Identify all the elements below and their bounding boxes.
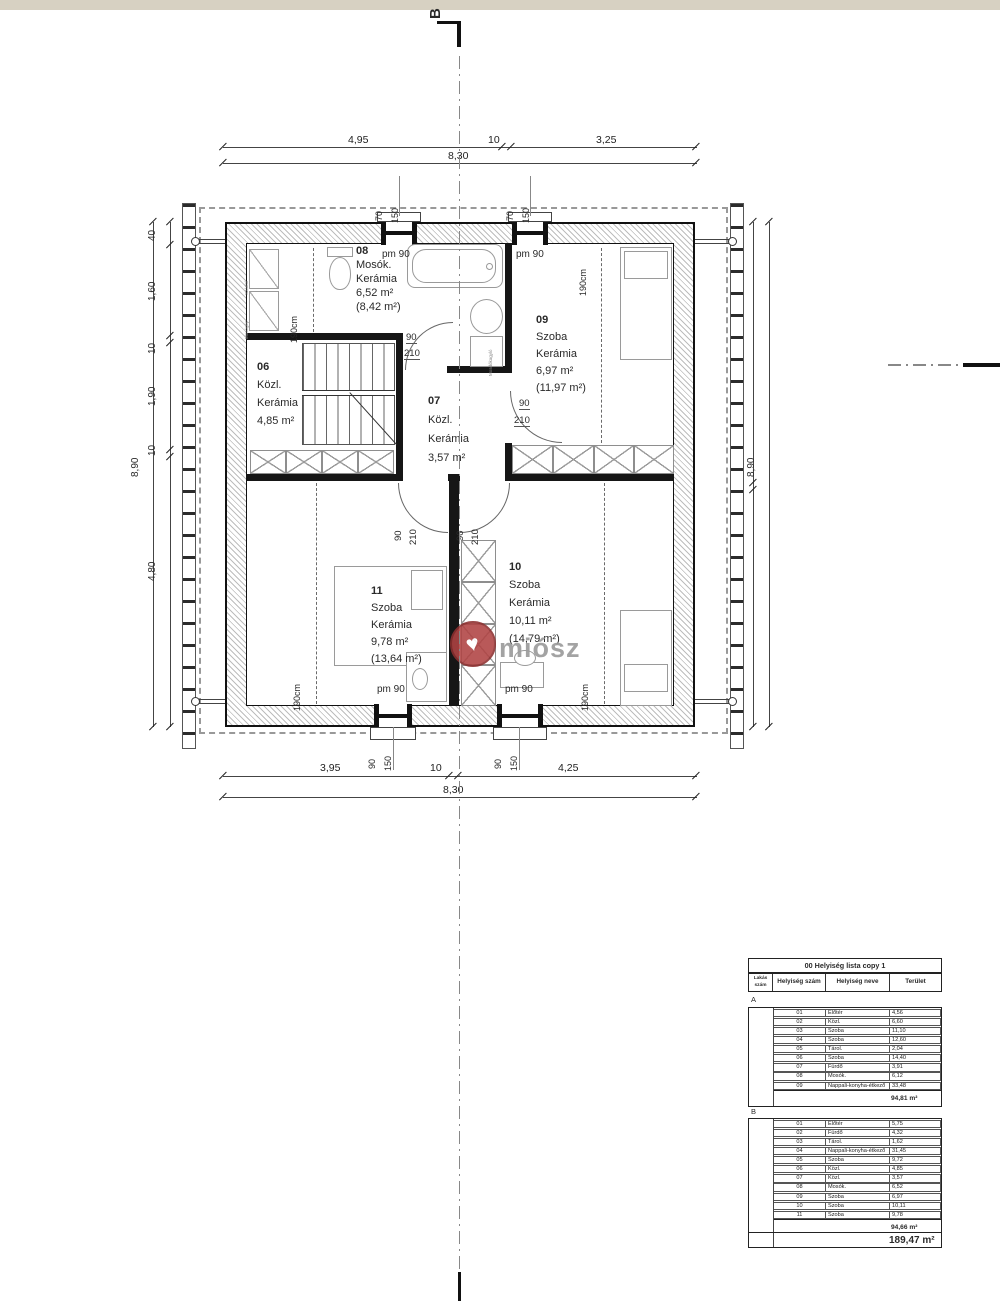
table-row: 08 Mosók. 6,12: [773, 1072, 941, 1080]
window-frame: [493, 727, 547, 740]
grand-total: 189,47 m²: [889, 1235, 935, 1246]
col-header-helyiseg-neve: Helyiség neve: [826, 974, 890, 991]
section-b-rows: 01 Előtér 5,75 02 Fürdő 4,32 03 Tárol. 1…: [773, 1120, 941, 1219]
col-header-terulet: Terület: [890, 974, 941, 991]
door-dim-w: 90: [519, 398, 530, 410]
window-dim-w: 70: [505, 211, 516, 221]
door-dim-w: 90: [406, 332, 417, 344]
washer-label: Mosógép: [241, 320, 252, 339]
table-row: 03 Szoba 11,10: [773, 1027, 941, 1035]
headroom-label: 190cm: [578, 269, 589, 296]
dim-bottom-2: 10: [430, 762, 442, 774]
cell-room-area: 5,75: [890, 1121, 940, 1127]
room-label-11: 11 Szoba Kerámia 9,78 m² (13,64 m²): [371, 583, 422, 668]
table-row: 05 Tárol. 2,04: [773, 1045, 941, 1053]
dim-left-4: 1,90: [147, 387, 158, 406]
wall: [396, 333, 403, 481]
table-row: 02 Fürdő 4,32: [773, 1129, 941, 1137]
cell-room-number: 04: [774, 1148, 826, 1154]
dim-top-3: 3,25: [596, 134, 616, 146]
wardrobe: [594, 445, 634, 474]
room-area: 4,85 m²: [257, 412, 298, 430]
window-dim-w: 90: [493, 759, 504, 769]
table-row: 09 Szoba 6,97: [773, 1193, 941, 1201]
room-number: 06: [257, 358, 298, 376]
cell-room-area: 33,48: [890, 1083, 940, 1089]
cell-room-name: Mosók.: [826, 1073, 890, 1079]
room-name: Szoba: [509, 576, 560, 594]
wall: [505, 243, 512, 373]
gutter-dot: [191, 697, 200, 706]
wardrobe: [286, 450, 322, 474]
chair: [412, 668, 428, 690]
dim-left-1: 40: [147, 230, 158, 241]
cell-room-number: 06: [774, 1055, 826, 1061]
dim-left-3: 10: [147, 343, 158, 354]
table-row: 04 Szoba 12,60: [773, 1036, 941, 1044]
headroom-line: [313, 248, 314, 332]
headroom-label: 190cm: [292, 684, 303, 711]
room-number: 11: [371, 583, 422, 600]
section-a-rows: 01 Előtér 4,56 02 Közl. 6,60 03 Szoba 11…: [773, 1009, 941, 1090]
door-dim-h: 210: [470, 529, 481, 545]
cell-room-number: 02: [774, 1019, 826, 1025]
parapet-label: pm 90: [377, 684, 405, 695]
cell-room-number: 07: [774, 1064, 826, 1070]
wardrobe: [553, 445, 594, 474]
room-number: 09: [536, 312, 586, 329]
cell-room-name: Szoba: [826, 1028, 890, 1034]
cell-room-number: 03: [774, 1028, 826, 1034]
table-row: 09 Nappali-konyha-étkező 33,48: [773, 1082, 941, 1090]
bed-pillow: [624, 251, 668, 279]
cell-room-area: 9,78: [890, 1212, 940, 1218]
room-number: 10: [509, 558, 560, 576]
door-dim-w: 90: [455, 530, 466, 541]
cell-room-name: Mosók.: [826, 1184, 890, 1190]
col-header-lakas-szam: Lakás szám: [749, 974, 773, 991]
table-row: 01 Előtér 4,56: [773, 1009, 941, 1017]
parapet-label: pm 90: [505, 684, 533, 695]
cell-room-number: 07: [774, 1175, 826, 1181]
table-row: 02 Közl. 6,60: [773, 1018, 941, 1026]
window-dim-h: 150: [390, 208, 401, 223]
bathtub-tap: [486, 263, 493, 270]
cell-room-name: Fürdő: [826, 1130, 890, 1136]
window-dim-w: 70: [374, 211, 385, 221]
dryer: [249, 249, 279, 289]
window: [497, 714, 543, 718]
wardrobe: [250, 450, 286, 474]
cell-room-number: 05: [774, 1046, 826, 1052]
cell-room-area: 9,72: [890, 1157, 940, 1163]
window-dim-w: 90: [367, 759, 378, 769]
room-label-09: 09 Szoba Kerámia 6,97 m² (11,97 m²): [536, 312, 586, 397]
dim-line: [223, 163, 697, 164]
dim-left-2: 1,60: [147, 282, 158, 301]
cell-room-name: Közl.: [826, 1166, 890, 1172]
table-row: 06 Szoba 14,40: [773, 1054, 941, 1062]
lakas-szam-column: [749, 1119, 774, 1235]
room-name: Szoba: [536, 329, 586, 346]
cell-room-name: Tárol.: [826, 1139, 890, 1145]
room-name: Mosók.: [356, 258, 401, 272]
cell-room-number: 03: [774, 1139, 826, 1145]
table-row: 10 Szoba 10,11: [773, 1202, 941, 1210]
table-row: 05 Szoba 9,72: [773, 1156, 941, 1164]
dim-top-2: 10: [488, 134, 500, 146]
cell-room-area: 12,60: [890, 1037, 940, 1043]
wardrobe: [461, 582, 496, 624]
lakas-szam-column: [749, 1008, 774, 1106]
lakas-szam-column: [749, 1233, 774, 1247]
cell-room-area: 1,62: [890, 1139, 940, 1145]
headroom-line: [604, 483, 605, 704]
dim-bottom-1: 3,95: [320, 762, 340, 774]
section-marker-label: B: [430, 8, 441, 19]
cell-room-number: 04: [774, 1037, 826, 1043]
cell-room-number: 08: [774, 1184, 826, 1190]
wall: [449, 481, 459, 706]
dim-top-1: 4,95: [348, 134, 368, 146]
dim-left-6: 4,80: [147, 562, 158, 581]
headroom-line: [601, 248, 602, 443]
cell-room-name: Szoba: [826, 1055, 890, 1061]
room-area-gross: (11,97 m²): [536, 380, 586, 397]
dim-bottom-total: 8,30: [443, 784, 463, 796]
room-material: Kerámia: [356, 272, 401, 286]
dim-line: [223, 797, 697, 798]
wall: [246, 333, 396, 340]
headroom-label: 190cm: [289, 316, 300, 343]
cell-room-number: 11: [774, 1212, 826, 1218]
cell-room-name: Nappali-konyha-étkező: [826, 1148, 890, 1154]
room-number: 07: [428, 392, 469, 411]
roof-edge-left: [182, 203, 196, 749]
washbasin-label: Mosdókagyló: [485, 349, 496, 376]
cell-room-name: Fürdő: [826, 1064, 890, 1070]
cell-room-number: 06: [774, 1166, 826, 1172]
cell-room-area: 6,52: [890, 1184, 940, 1190]
section-b-label: B: [751, 1107, 756, 1116]
door-dim-h: 210: [404, 348, 420, 360]
dim-line: [223, 147, 697, 148]
cell-room-name: Szoba: [826, 1157, 890, 1163]
headroom-label: 190cm: [580, 684, 591, 711]
section-line-b: [459, 56, 461, 1272]
table-row: 01 Előtér 5,75: [773, 1120, 941, 1128]
table-row: 08 Mosók. 6,52: [773, 1183, 941, 1191]
dim-line: [769, 222, 770, 727]
cell-room-area: 4,85: [890, 1166, 940, 1172]
wardrobe: [634, 445, 674, 474]
room-area: 3,57 m²: [428, 449, 469, 468]
wardrobe: [461, 540, 496, 582]
section-line-a-end: [963, 363, 1000, 367]
watermark-text: miósz: [499, 633, 581, 664]
room-label-06: 06 Közl. Kerámia 4,85 m²: [257, 358, 298, 430]
cell-room-name: Nappali-konyha-étkező: [826, 1083, 890, 1089]
scan-edge: [0, 0, 1000, 10]
door-dim-w: 90: [393, 530, 404, 541]
bed-pillow: [624, 664, 668, 692]
room-material: Kerámia: [257, 394, 298, 412]
wardrobe: [322, 450, 358, 474]
cell-room-name: Tárol.: [826, 1046, 890, 1052]
section-a-label: A: [751, 995, 756, 1004]
wardrobe: [358, 450, 394, 474]
dim-line: [170, 222, 171, 727]
table-title-cell: 00 Helyiség lista copy 1: [748, 958, 942, 973]
gutter-dot: [191, 237, 200, 246]
room-area: 9,78 m²: [371, 634, 422, 651]
dim-left-total: 8,90: [130, 458, 141, 477]
window-dim-h: 150: [383, 756, 394, 771]
cell-room-name: Szoba: [826, 1203, 890, 1209]
door-dim-h: 210: [514, 415, 530, 427]
section-a-total: 94,81 m²: [891, 1095, 917, 1102]
col-header-helyiseg-szam: Helyiség szám: [773, 974, 826, 991]
section-marker-line: [457, 21, 461, 47]
grand-total-row: 189,47 m²: [748, 1232, 942, 1248]
section-line-b-end: [458, 1272, 461, 1301]
toilet-tank: [327, 247, 353, 257]
dim-line: [223, 776, 697, 777]
dim-left-5: 10: [147, 445, 158, 456]
room-area: 10,11 m²: [509, 612, 560, 630]
watermark-logo: ♥: [450, 621, 496, 667]
window-dim-h: 150: [521, 208, 532, 223]
dim-right-total: 8,90: [746, 458, 757, 477]
room-name: Szoba: [371, 600, 422, 617]
room-material: Kerámia: [371, 617, 422, 634]
cell-room-number: 05: [774, 1157, 826, 1163]
window-dim-h: 150: [509, 756, 520, 771]
logo-emblem-icon: ♥: [450, 621, 496, 667]
wall: [246, 474, 398, 481]
table-row: 11 Szoba 9,78: [773, 1211, 941, 1219]
cell-room-area: 3,91: [890, 1064, 940, 1070]
wall: [447, 366, 512, 373]
cell-room-number: 01: [774, 1121, 826, 1127]
cell-room-name: Szoba: [826, 1212, 890, 1218]
room-name: Közl.: [257, 376, 298, 394]
room-label-07: 07 Közl. Kerámia 3,57 m²: [428, 392, 469, 468]
cell-room-name: Közl.: [826, 1019, 890, 1025]
room-material: Kerámia: [428, 430, 469, 449]
room-area-gross: (8,42 m²): [356, 300, 401, 314]
table-row: 06 Közl. 4,85: [773, 1165, 941, 1173]
cell-room-area: 6,60: [890, 1019, 940, 1025]
wardrobe: [461, 665, 496, 706]
cell-room-area: 4,32: [890, 1130, 940, 1136]
table-row: 07 Közl. 3,57: [773, 1174, 941, 1182]
floor-plan-sheet: B 4,95 10 3,25 8,30 3,95 10 4,25 8,30 40…: [0, 0, 1000, 1301]
door-dim-h: 210: [408, 529, 419, 545]
gutter-dot: [728, 237, 737, 246]
dim-bottom-3: 4,25: [558, 762, 578, 774]
room-label-08: 08 Mosók. Kerámia 6,52 m² (8,42 m²): [356, 244, 401, 314]
table-section-b: 01 Előtér 5,75 02 Fürdő 4,32 03 Tárol. 1…: [748, 1118, 942, 1236]
toilet: [329, 257, 351, 290]
cell-room-area: 14,40: [890, 1055, 940, 1061]
wardrobe: [512, 445, 553, 474]
cell-room-area: 3,57: [890, 1175, 940, 1181]
cell-room-number: 08: [774, 1073, 826, 1079]
table-section-a: 01 Előtér 4,56 02 Közl. 6,60 03 Szoba 11…: [748, 1007, 942, 1107]
cell-room-number: 09: [774, 1194, 826, 1200]
section-a-total-row: 94,81 m²: [773, 1090, 941, 1106]
table-row: 07 Fürdő 3,91: [773, 1063, 941, 1071]
cell-room-name: Szoba: [826, 1194, 890, 1200]
room-name: Közl.: [428, 411, 469, 430]
cell-room-area: 10,11: [890, 1203, 940, 1209]
cell-room-area: 11,10: [890, 1028, 940, 1034]
roof-edge-right: [730, 203, 744, 749]
cell-room-number: 01: [774, 1010, 826, 1016]
cell-room-area: 6,97: [890, 1194, 940, 1200]
cell-room-number: 10: [774, 1203, 826, 1209]
cell-room-area: 31,45: [890, 1148, 940, 1154]
shower-basin: [470, 299, 503, 334]
parapet-label: pm 90: [516, 249, 544, 260]
table-row: 03 Tárol. 1,62: [773, 1138, 941, 1146]
section-line-a: [888, 364, 964, 366]
gutter-dot: [728, 697, 737, 706]
cell-room-area: 4,56: [890, 1010, 940, 1016]
cell-room-number: 02: [774, 1130, 826, 1136]
room-area: 6,97 m²: [536, 363, 586, 380]
wall: [510, 474, 674, 481]
cell-room-name: Előtér: [826, 1121, 890, 1127]
cell-room-area: 6,12: [890, 1073, 940, 1079]
cell-room-name: Előtér: [826, 1010, 890, 1016]
headroom-line: [316, 483, 317, 704]
cell-room-name: Szoba: [826, 1037, 890, 1043]
room-area: 6,52 m²: [356, 286, 401, 300]
table-header-row: Lakás szám Helyiség szám Helyiség neve T…: [748, 973, 942, 992]
room-material: Kerámia: [536, 346, 586, 363]
table-row: 04 Nappali-konyha-étkező 31,45: [773, 1147, 941, 1155]
washing-machine: [249, 291, 279, 331]
room-number: 08: [356, 244, 401, 258]
section-b-total: 94,66 m²: [891, 1224, 917, 1231]
table-title: 00 Helyiség lista copy 1: [805, 961, 886, 970]
cell-room-area: 2,04: [890, 1046, 940, 1052]
room-material: Kerámia: [509, 594, 560, 612]
room-area-gross: (13,64 m²): [371, 651, 422, 668]
cell-room-number: 09: [774, 1083, 826, 1089]
cell-room-name: Közl.: [826, 1175, 890, 1181]
dryer-label: Szárító: [241, 281, 252, 295]
bathtub-inner: [412, 249, 496, 283]
